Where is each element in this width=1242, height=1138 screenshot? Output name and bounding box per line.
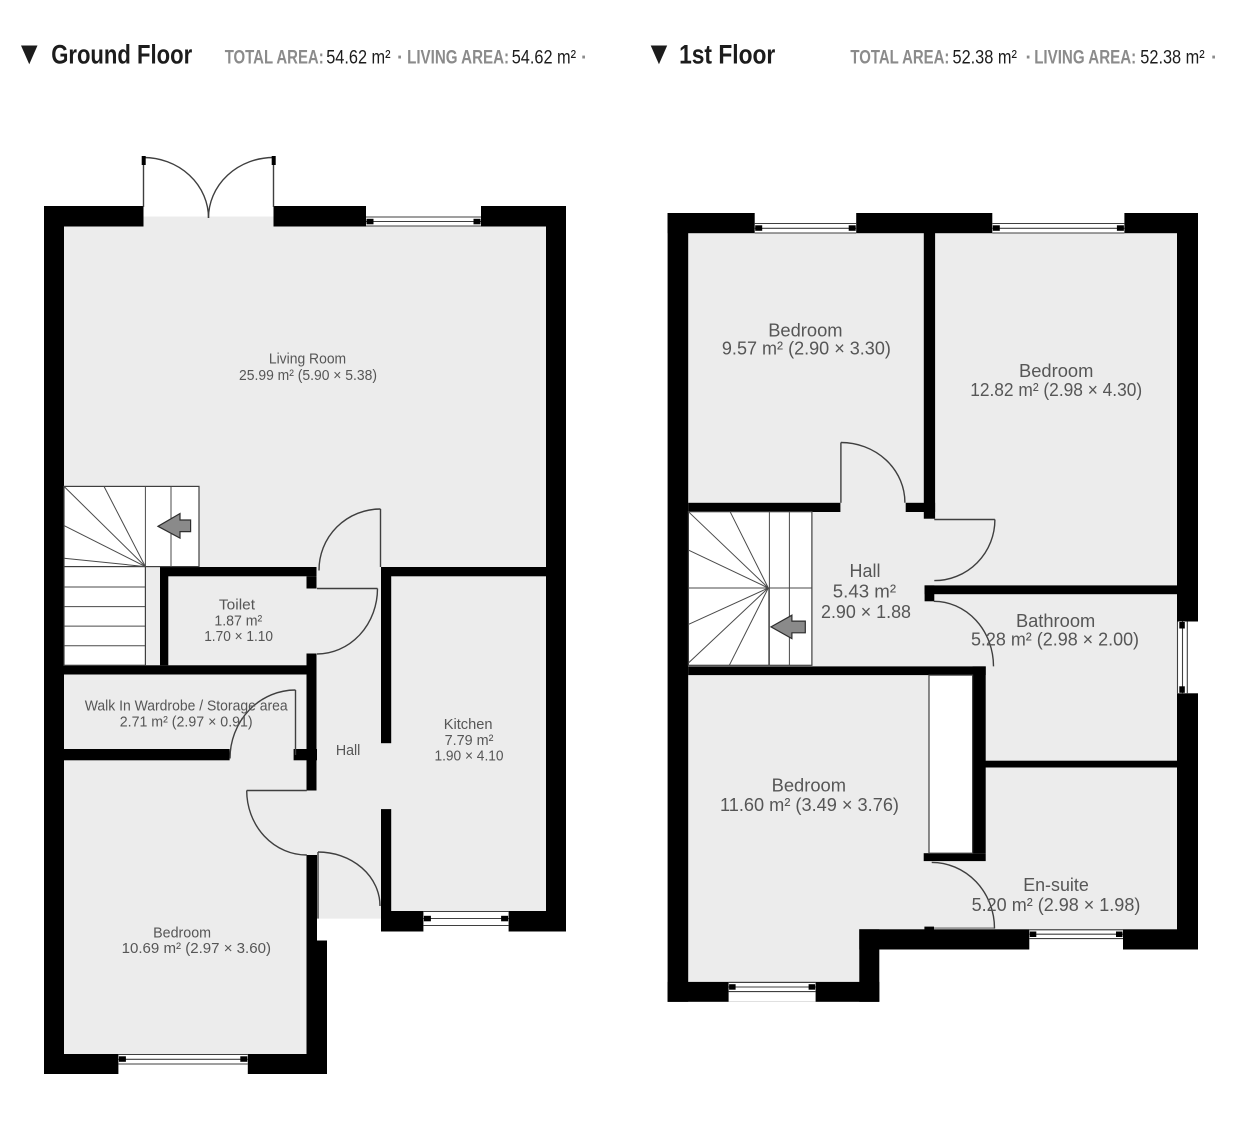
svg-text:TOTAL AREA:: TOTAL AREA: bbox=[850, 48, 949, 69]
svg-text:54.62 m²: 54.62 m² bbox=[512, 48, 576, 69]
svg-text:Hall: Hall bbox=[850, 560, 881, 581]
svg-text:·: · bbox=[581, 48, 587, 69]
svg-text:·: · bbox=[397, 48, 403, 69]
svg-text:7.79 m²: 7.79 m² bbox=[445, 732, 494, 749]
svg-text:1.87 m²: 1.87 m² bbox=[214, 612, 262, 629]
svg-text:·: · bbox=[1211, 48, 1217, 69]
svg-text:5.28 m² (2.98 × 2.00): 5.28 m² (2.98 × 2.00) bbox=[971, 629, 1139, 650]
svg-text:10.69 m² (2.97 × 3.60): 10.69 m² (2.97 × 3.60) bbox=[122, 940, 271, 957]
svg-text:·: · bbox=[1026, 48, 1032, 69]
svg-text:TOTAL AREA:: TOTAL AREA: bbox=[225, 48, 324, 69]
svg-text:LIVING AREA:: LIVING AREA: bbox=[407, 48, 509, 69]
svg-text:En-suite: En-suite bbox=[1023, 874, 1089, 895]
svg-text:LIVING AREA:: LIVING AREA: bbox=[1034, 48, 1136, 69]
svg-text:52.38 m²: 52.38 m² bbox=[1140, 48, 1204, 69]
svg-text:9.57 m² (2.90 × 3.30): 9.57 m² (2.90 × 3.30) bbox=[722, 338, 891, 359]
svg-text:5.43 m²: 5.43 m² bbox=[833, 581, 896, 602]
svg-text:54.62 m²: 54.62 m² bbox=[326, 48, 390, 69]
svg-text:Ground Floor: Ground Floor bbox=[51, 40, 192, 70]
svg-text:2.71 m² (2.97 × 0.91): 2.71 m² (2.97 × 0.91) bbox=[120, 714, 253, 731]
svg-text:Toilet: Toilet bbox=[219, 597, 256, 614]
svg-text:Bedroom: Bedroom bbox=[772, 775, 846, 796]
svg-text:Bedroom: Bedroom bbox=[1019, 360, 1093, 381]
svg-text:5.20 m² (2.98 × 1.98): 5.20 m² (2.98 × 1.98) bbox=[972, 894, 1141, 915]
svg-text:1st Floor: 1st Floor bbox=[679, 40, 776, 70]
svg-text:Walk In Wardrobe / Storage are: Walk In Wardrobe / Storage area bbox=[85, 697, 288, 714]
svg-text:1.90 × 4.10: 1.90 × 4.10 bbox=[434, 747, 503, 764]
svg-text:11.60 m² (3.49 × 3.76): 11.60 m² (3.49 × 3.76) bbox=[720, 794, 899, 815]
svg-text:Hall: Hall bbox=[336, 742, 361, 759]
svg-text:25.99 m² (5.90 × 5.38): 25.99 m² (5.90 × 5.38) bbox=[239, 367, 377, 384]
svg-text:1.70 × 1.10: 1.70 × 1.10 bbox=[204, 628, 273, 645]
svg-text:Kitchen: Kitchen bbox=[444, 716, 493, 733]
svg-text:12.82 m² (2.98 × 4.30): 12.82 m² (2.98 × 4.30) bbox=[970, 379, 1142, 400]
svg-text:52.38 m²: 52.38 m² bbox=[953, 48, 1017, 69]
svg-text:2.90 × 1.88: 2.90 × 1.88 bbox=[821, 601, 911, 622]
svg-text:Bedroom: Bedroom bbox=[153, 924, 211, 941]
svg-text:Living Room: Living Room bbox=[269, 351, 346, 368]
